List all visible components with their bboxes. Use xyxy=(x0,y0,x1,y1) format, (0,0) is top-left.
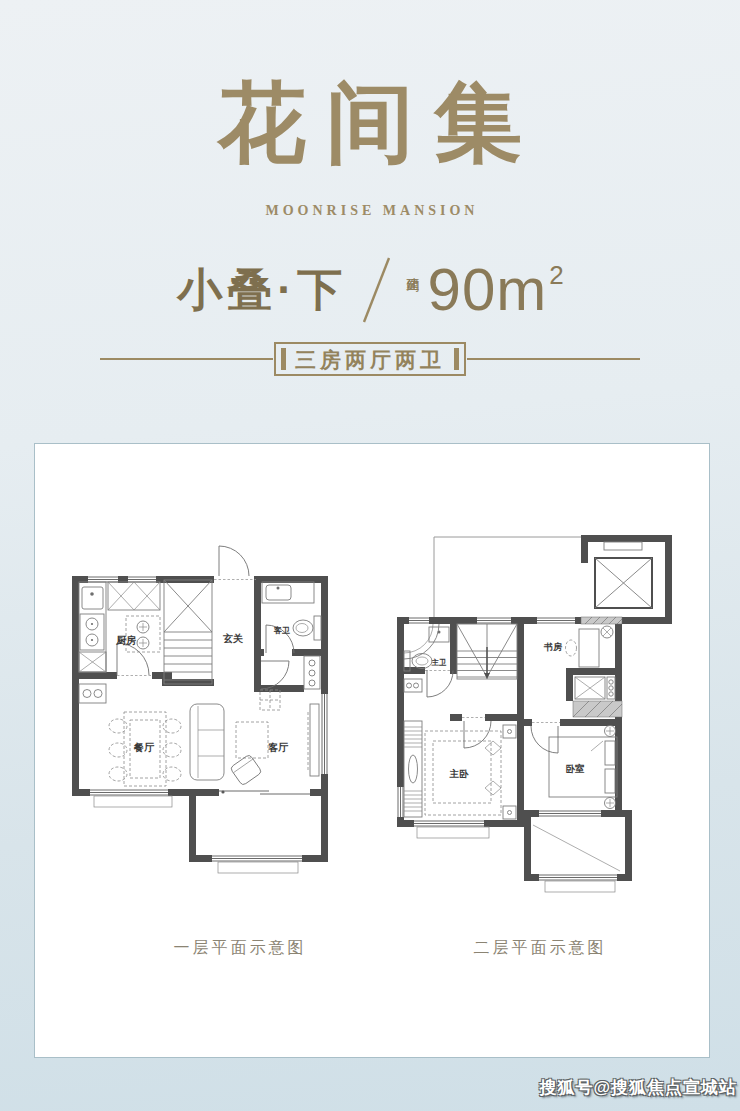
floor1-living-furniture xyxy=(190,690,319,786)
floor2-terrace xyxy=(533,825,620,871)
plaque-end-bar-right xyxy=(454,348,459,370)
floor2-staircase xyxy=(457,624,517,679)
floor2-elevator xyxy=(595,542,652,608)
floor1-windows xyxy=(88,576,328,873)
slash-divider-icon xyxy=(357,254,395,326)
floor2-caption: 二层平面示意图 xyxy=(395,938,685,959)
area-number: 90m xyxy=(428,256,548,323)
floor2-label-bedroom: 卧室 xyxy=(566,763,586,774)
unit-name: 小叠·下 xyxy=(177,260,347,320)
watermark: 搜狐号@搜狐焦点宣城站 xyxy=(539,1076,737,1099)
floor2-open-void-outline xyxy=(434,537,581,617)
floorplan-card: 厨房 玄关 客卫 餐厅 客厅 xyxy=(34,443,710,1058)
spec-row: 三房两厅两卫 xyxy=(0,341,740,377)
unit-info-row: 小叠·下 建面约 90m2 xyxy=(0,250,740,330)
floor1-caption: 一层平面示意图 xyxy=(75,938,405,959)
floor2-doors xyxy=(425,670,560,753)
page-title: 花间集 xyxy=(0,72,740,176)
area-value: 90m2 xyxy=(428,260,563,320)
floor1-label-kitchen: 厨房 xyxy=(115,635,136,646)
floor1-label-foyer: 玄关 xyxy=(222,633,243,644)
floor1-staircase xyxy=(164,580,212,684)
floor1-label-guest-bath: 客卫 xyxy=(273,625,290,635)
floor2-label-master-bedroom: 主卧 xyxy=(449,768,470,779)
floor1-label-living: 客厅 xyxy=(267,742,289,753)
floor1-label-dining: 餐厅 xyxy=(133,742,155,753)
floor1-plan-drawing: 厨房 玄关 客卫 餐厅 客厅 xyxy=(64,544,338,896)
floor2-flue-duct xyxy=(573,701,622,717)
floor2-plan-drawing: 主卫 书房 主卧 卧室 xyxy=(389,529,679,906)
spec-divider-right xyxy=(467,358,640,360)
floor1-bath-fixtures xyxy=(262,582,321,689)
area-exponent: 2 xyxy=(549,260,564,290)
floor1-doors xyxy=(117,546,294,689)
spec-divider-left xyxy=(100,358,273,360)
spec-plaque: 三房两厅两卫 xyxy=(274,342,466,376)
area-approx-label: 建面约 xyxy=(405,267,419,313)
floor2-label-study: 书房 xyxy=(543,642,563,652)
floor2-label-master-bath: 主卫 xyxy=(431,658,448,667)
spec-label: 三房两厅两卫 xyxy=(286,349,454,370)
page-subtitle: MOONRISE MANSION xyxy=(0,203,740,219)
floor2-walls xyxy=(397,535,672,881)
poster-page: 花间集 MOONRISE MANSION 小叠·下 建面约 90m2 三房两厅两… xyxy=(0,0,740,1111)
